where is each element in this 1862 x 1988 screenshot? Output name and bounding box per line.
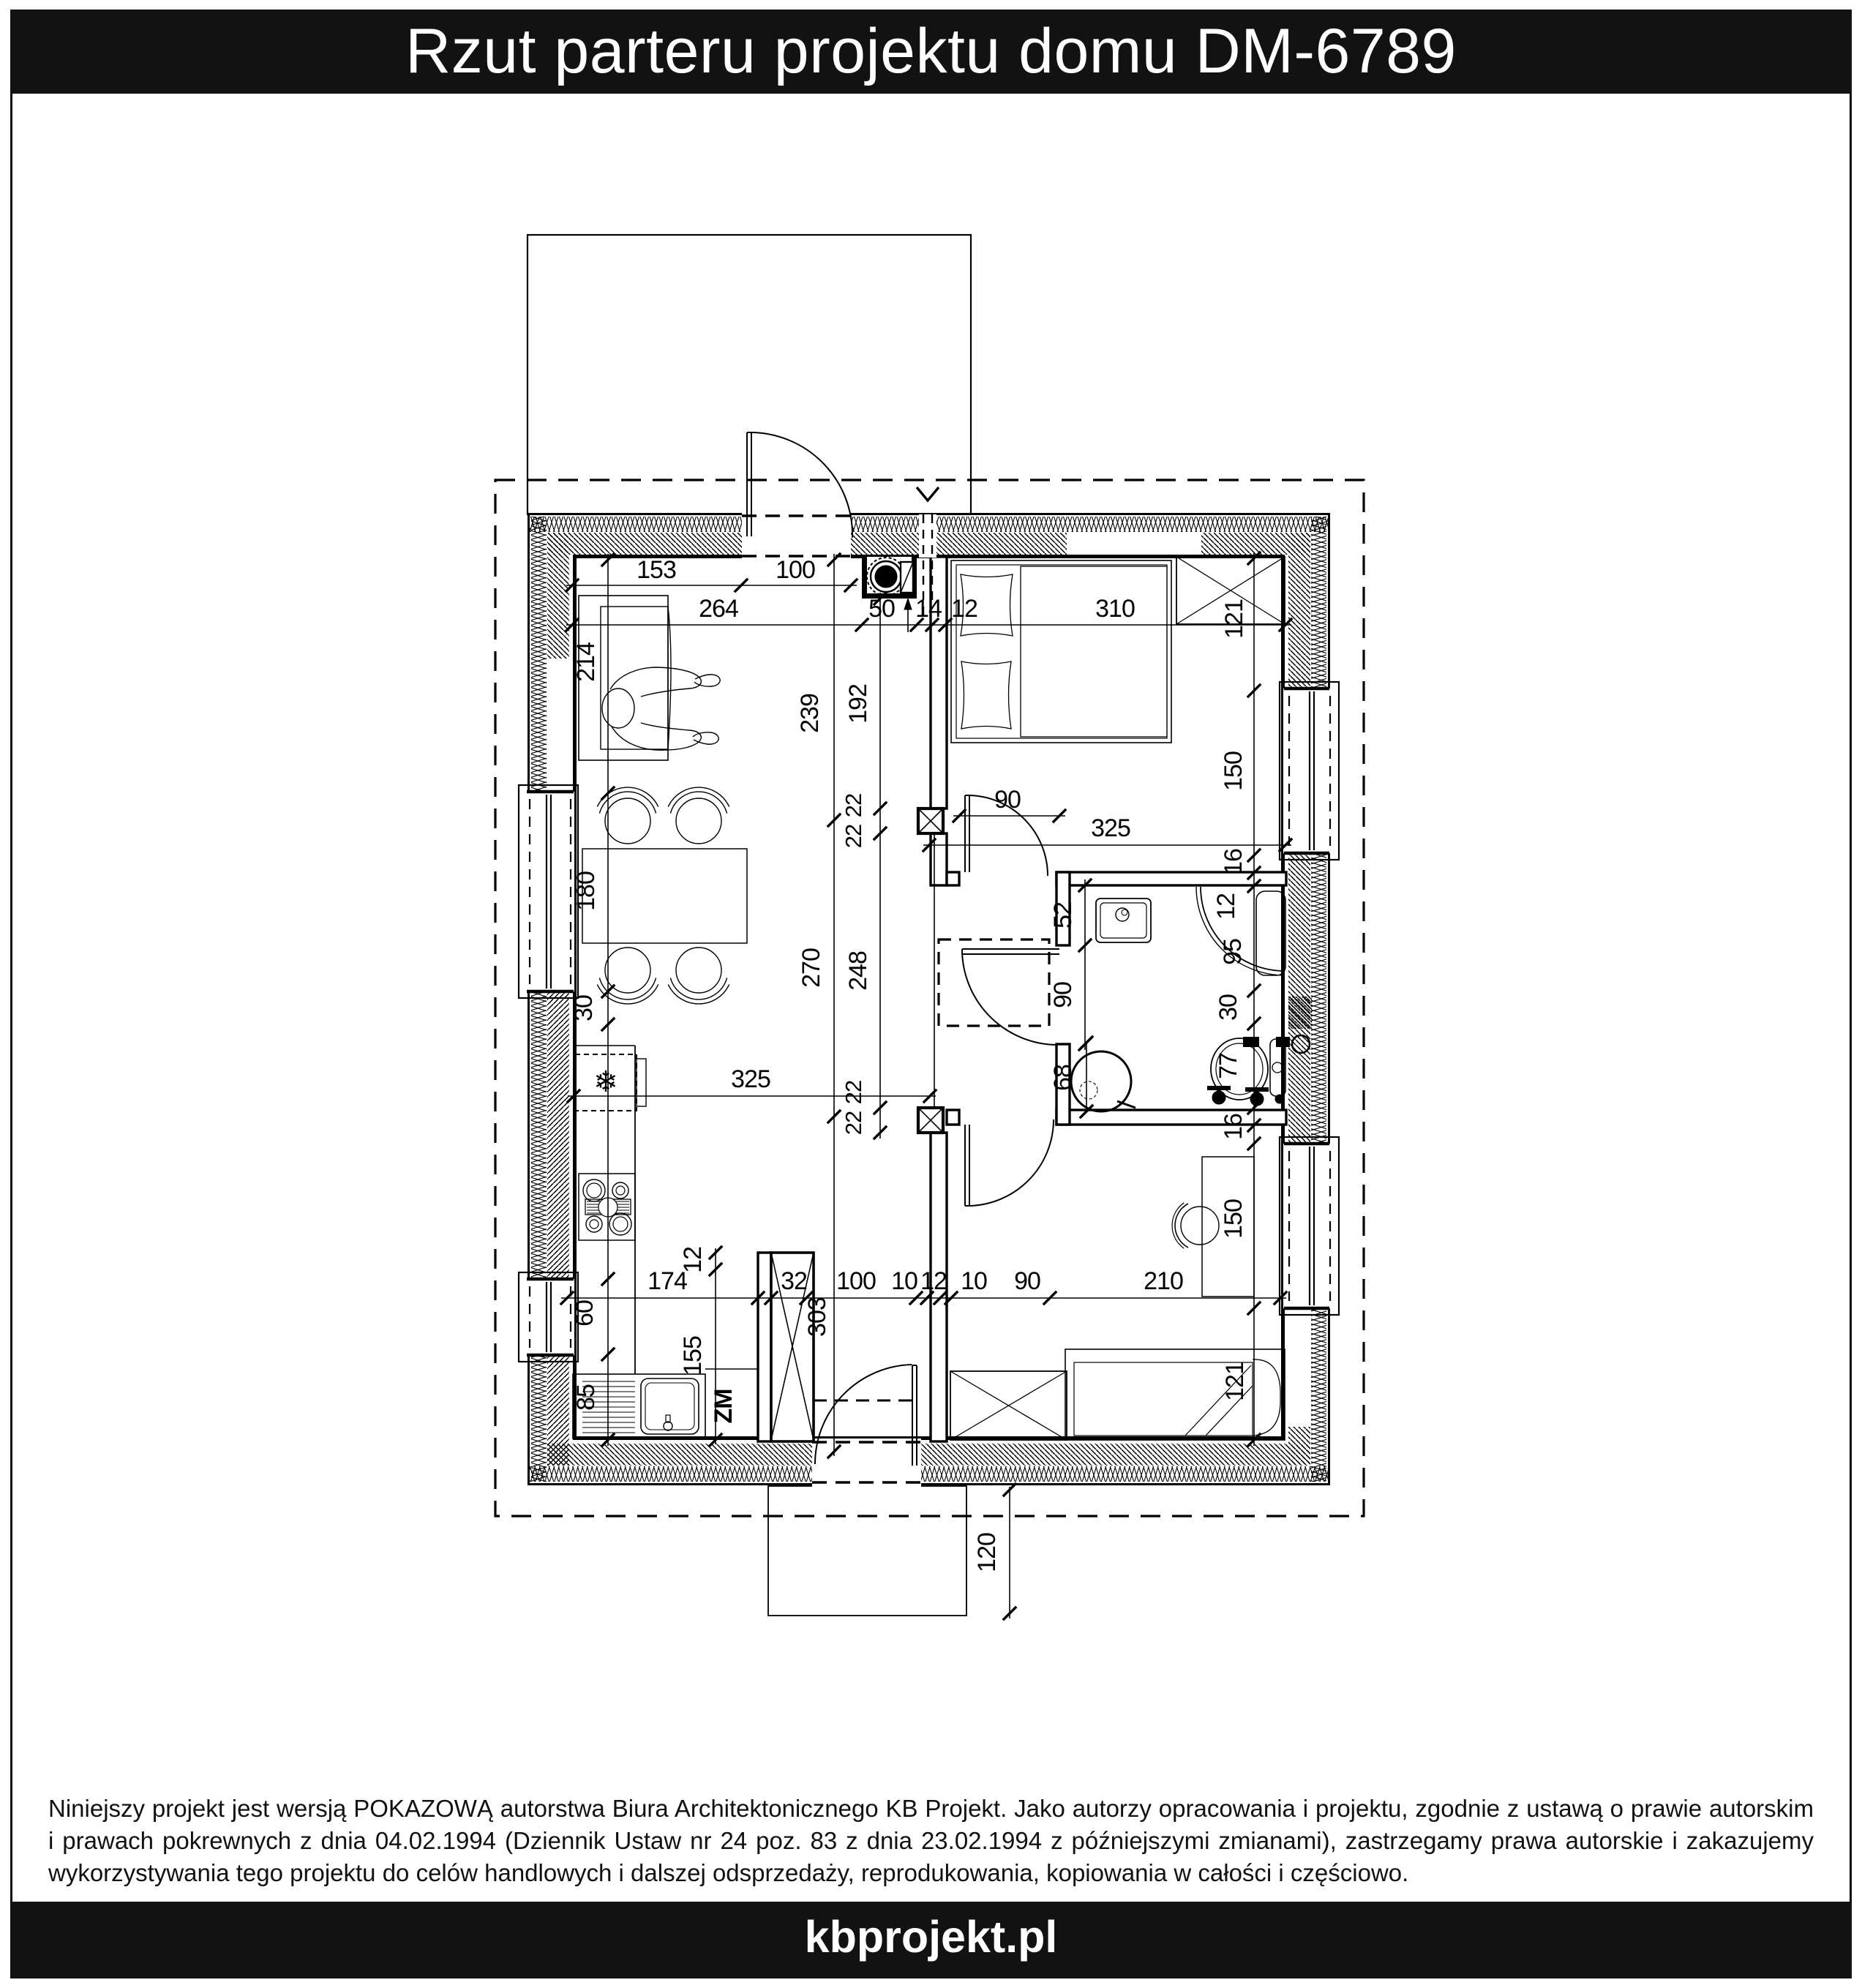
svg-text:210: 210 (1144, 1267, 1183, 1295)
svg-text:325: 325 (731, 1065, 770, 1093)
svg-text:192: 192 (844, 684, 872, 724)
svg-text:248: 248 (844, 951, 872, 991)
svg-text:12: 12 (1212, 893, 1240, 920)
svg-text:120: 120 (973, 1533, 1001, 1572)
svg-text:180: 180 (572, 871, 600, 911)
svg-text:12: 12 (951, 595, 977, 623)
svg-text:12: 12 (679, 1247, 707, 1273)
svg-text:16: 16 (1220, 849, 1247, 875)
svg-text:32: 32 (781, 1267, 807, 1295)
svg-text:68: 68 (1049, 1065, 1077, 1091)
svg-text:100: 100 (776, 556, 815, 584)
svg-text:325: 325 (1091, 814, 1130, 842)
svg-text:155: 155 (679, 1336, 707, 1376)
svg-text:14: 14 (915, 595, 942, 623)
svg-text:10: 10 (961, 1267, 987, 1295)
svg-text:121: 121 (1221, 1362, 1249, 1401)
svg-text:150: 150 (1220, 751, 1247, 791)
svg-text:90: 90 (994, 786, 1021, 814)
svg-text:50: 50 (868, 595, 895, 623)
svg-text:❄: ❄ (593, 1066, 618, 1098)
svg-text:150: 150 (1220, 1199, 1247, 1239)
svg-text:90: 90 (1014, 1267, 1040, 1295)
svg-text:30: 30 (1215, 994, 1242, 1021)
svg-text:90: 90 (1049, 982, 1077, 1008)
svg-text:153: 153 (637, 556, 676, 584)
svg-text:10: 10 (891, 1267, 917, 1295)
svg-text:239: 239 (796, 694, 824, 733)
svg-text:22: 22 (841, 825, 866, 848)
svg-text:52: 52 (1049, 902, 1077, 929)
svg-text:22: 22 (841, 794, 866, 817)
svg-text:100: 100 (836, 1267, 876, 1295)
svg-text:85: 85 (572, 1384, 600, 1411)
svg-text:121: 121 (1220, 599, 1248, 639)
svg-text:310: 310 (1095, 595, 1135, 623)
svg-text:22: 22 (841, 1081, 866, 1104)
svg-text:270: 270 (797, 948, 825, 988)
svg-text:30: 30 (570, 995, 598, 1021)
svg-text:ZM: ZM (710, 1389, 737, 1423)
svg-text:264: 264 (699, 595, 738, 623)
svg-text:77: 77 (1215, 1053, 1242, 1079)
svg-text:12: 12 (920, 1267, 947, 1295)
svg-text:214: 214 (572, 642, 600, 682)
svg-text:16: 16 (1220, 1114, 1247, 1140)
svg-text:95: 95 (1219, 939, 1247, 965)
svg-text:60: 60 (571, 1300, 598, 1327)
svg-text:303: 303 (803, 1297, 831, 1337)
svg-text:22: 22 (841, 1111, 866, 1135)
